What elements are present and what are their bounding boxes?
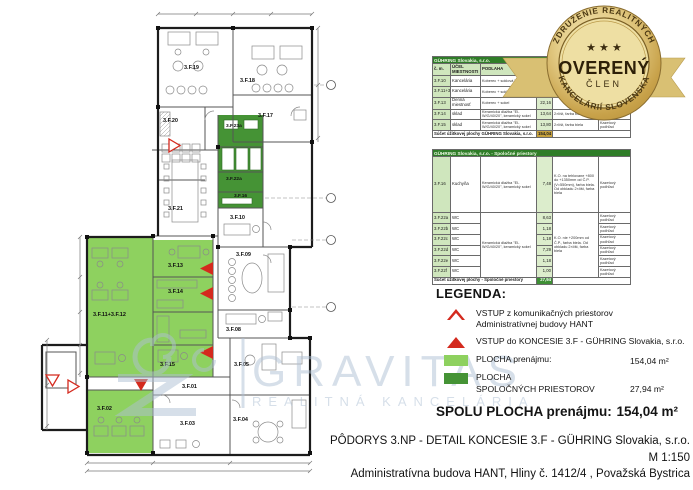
room-label-f20: 3.F.20	[163, 118, 178, 124]
room-label-f18: 3.F.18	[240, 78, 255, 84]
table-row: 3.F.16Kuchyňa Keramická dlažba "EI-W/G/4…	[433, 157, 631, 213]
common-areas-table: GÜHRING Slovakia, s.r.o. - Spoločné prie…	[432, 149, 631, 285]
rent-area-label: PLOCHA prenájmu:	[476, 354, 551, 365]
legend-entry-hant: VSTUP z komunikačných priestorov Adminis…	[436, 308, 692, 330]
room-label-f21: 3.F.21	[168, 206, 183, 212]
legend-entry-koncesia-text: VSTUP do KONCESIE 3.F - GÜHRING Slovakia…	[476, 336, 685, 347]
outline-triangle-icon	[447, 309, 465, 320]
room-label-f03: 3.F.03	[180, 421, 195, 427]
room-label-f04: 3.F.04	[233, 417, 249, 423]
legend-entry-hant-line2: Administratívnej budovy HANT	[476, 319, 613, 330]
room-label-f05: 3.F.05	[234, 362, 249, 368]
room-label-f10: 3.F.10	[230, 215, 245, 221]
room-label-f19: 3.F.19	[184, 65, 199, 71]
room-label-f02: 3.F.02	[97, 406, 112, 412]
drawing-title: PÔDORYS 3.NP - DETAIL KONCESIE 3.F - GÜH…	[270, 433, 690, 450]
rooms-table-total-label: Súčet úžitkovej plochy GÜHRING Slovakia,…	[433, 131, 537, 138]
common-areas-table-title: GÜHRING Slovakia, s.r.o. - Spoločné prie…	[433, 150, 631, 157]
room-label-f1112: 3.F.11+3.F.12	[93, 312, 126, 318]
room-label-f08: 3.F.08	[226, 327, 241, 333]
page: 3.F.19 3.F.18 3.F.20 3.F.17 3.F.23a 3.F.…	[0, 0, 693, 490]
common-area-label-line2: SPOLOČNÝCH PRIESTOROV	[476, 384, 595, 395]
room-label-f17: 3.F.17	[258, 113, 273, 119]
legend-entry-hant-line1: VSTUP z komunikačných priestorov	[476, 308, 613, 319]
table-row: 3.F.22aWC Keramická dlažba "EI-W/G/40/20…	[433, 213, 631, 224]
common-area-swatch	[444, 373, 468, 384]
legend-common-area: PLOCHA SPOLOČNÝCH PRIESTOROV 27,94 m²	[436, 372, 692, 394]
total-value: 154,04 m²	[616, 404, 692, 419]
title-block: PÔDORYS 3.NP - DETAIL KONCESIE 3.F - GÜH…	[270, 433, 690, 483]
total-label: SPOLU PLOCHA prenájmu:	[436, 404, 612, 419]
badge-center-text: OVERENÝ	[558, 57, 650, 78]
room-label-f23a: 3.F.23a	[226, 123, 242, 129]
common-area-label-line1: PLOCHA	[476, 372, 595, 383]
table-footer-row: Súčet úžitkovej plochy GÜHRING Slovakia,…	[433, 131, 631, 138]
legend-heading: LEGENDA:	[436, 286, 692, 301]
rent-area-swatch	[444, 355, 468, 366]
legend-rent-area: PLOCHA prenájmu: 154,04 m²	[436, 354, 692, 366]
room-label-f14: 3.F.14	[168, 289, 184, 295]
room-label-f16: 3.F.16	[234, 193, 247, 199]
common-areas-total-value: 27,94	[537, 277, 553, 284]
filled-triangle-icon	[447, 337, 465, 348]
badge-member-text: ČLEN	[586, 79, 622, 89]
drawing-scale: M 1:150	[270, 450, 690, 467]
legend-entry-koncesia: VSTUP do KONCESIE 3.F - GÜHRING Slovakia…	[436, 336, 692, 348]
room-label-f01: 3.F.01	[182, 384, 197, 390]
room-label-f09: 3.F.09	[236, 252, 251, 258]
verified-member-badge: ZDRUŽENIE REALITNÝCH KANCELÁRIÍ SLOVENSK…	[495, 0, 693, 130]
rooms-table-total-value: 154,04	[537, 131, 553, 138]
legend-total: SPOLU PLOCHA prenájmu: 154,04 m²	[436, 404, 692, 419]
table-footer-row: Súčet úžitkovej plochy - Spoločné priest…	[433, 277, 631, 284]
grid-bubbles	[265, 81, 336, 312]
rent-area-value: 154,04 m²	[630, 354, 692, 366]
common-areas-total-label: Súčet úžitkovej plochy - Spoločné priest…	[433, 277, 537, 284]
common-area-value: 27,94 m²	[630, 372, 692, 394]
room-label-f22a: 3.F.22a	[226, 176, 242, 182]
badge-stars-icon: ★ ★ ★	[586, 42, 622, 54]
legend: LEGENDA: VSTUP z komunikačných priestoro…	[436, 286, 692, 419]
entry-arrow-hant-left2	[68, 380, 79, 393]
drawing-address: Administratívna budova HANT, Hliny č. 14…	[270, 466, 690, 483]
room-label-f13: 3.F.13	[168, 263, 183, 269]
